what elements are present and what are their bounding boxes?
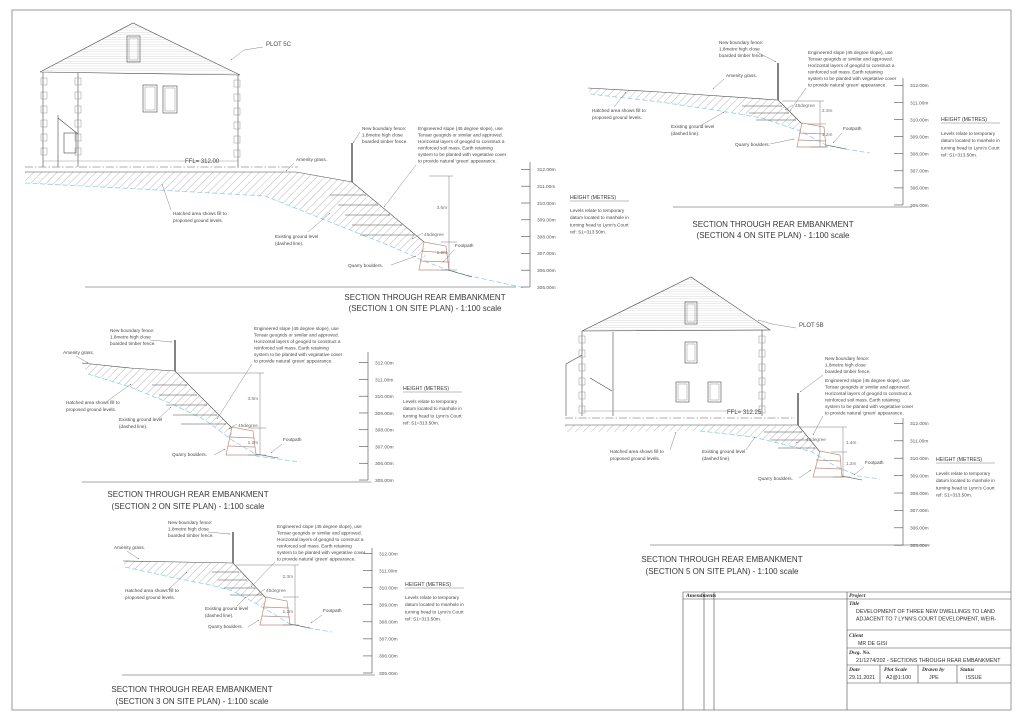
existing-ground-note: Existing ground level <box>671 124 714 129</box>
leader-line <box>251 562 275 587</box>
ffl-label: FFL= 312.00 <box>185 159 220 165</box>
height-scale-note: ref: S1=313.50m. <box>936 493 972 498</box>
hatched-area-note: Hatched area shows fill to <box>592 108 646 113</box>
section-4: 2.3m1.2m45degreeFootpathQuarry boulders.… <box>588 40 1000 240</box>
level-label: 306.00m <box>537 268 556 274</box>
leader-line <box>770 139 794 144</box>
existing-ground-note: (dashed line). <box>119 424 147 429</box>
engineered-slope-note: Engineered slope (45 degree slope), use <box>825 378 910 383</box>
level-label: 305.00m <box>537 285 556 291</box>
dim-lower-label: 1.2m <box>846 461 857 466</box>
ffl-label: FFL= 312.25 <box>727 410 762 416</box>
leader-line <box>800 375 823 392</box>
fence-note: 1.8metre high close <box>362 133 403 138</box>
quarry-boulders-label: Quarry boulders. <box>735 142 770 147</box>
level-label: 309.00m <box>375 411 394 417</box>
leader-line <box>237 597 246 606</box>
fence-note: boarded timber fence. <box>362 139 408 144</box>
level-label: 308.00m <box>375 428 394 434</box>
leader-line <box>353 132 360 143</box>
existing-ground-note: (dashed line). <box>702 456 730 461</box>
height-scale-note: Levels relate to temporary <box>405 595 460 600</box>
height-scale-note: turning head to Lynn's Court <box>405 609 464 614</box>
engineered-slope-note: system to be planted with vegetative cov… <box>825 404 914 409</box>
fill-hatch-area <box>123 561 268 610</box>
section-title-line2: (SECTION 1 ON SITE PLAN) - 1:100 scale <box>349 304 502 313</box>
engineered-slope-note: Tensar geogrids or similar and approved. <box>418 133 503 138</box>
engineered-slope-note: to provide natural 'green' appearance. <box>277 557 356 562</box>
dwg-no-label: Dwg. No. <box>848 650 871 656</box>
engineered-slope-note: Engineered slope (45 degree slope), use <box>418 126 503 131</box>
leader-line <box>384 165 416 207</box>
level-label: 310.00m <box>537 201 556 207</box>
engineered-slope-note: reinforced soil mass. Earth retaining <box>277 544 352 549</box>
section-title-line2: (SECTION 5 ON SITE PLAN) - 1:100 scale <box>646 567 799 576</box>
level-label: 311.00m <box>375 377 393 383</box>
level-label: 307.00m <box>375 444 394 450</box>
drawing-line <box>826 145 846 149</box>
status-value: ISSUE <box>966 675 982 681</box>
drawn-by-label: Drawn by <box>921 667 945 673</box>
amenity-grass-label: Amenity grass. <box>726 73 757 78</box>
plot-label: PLOT 5B <box>799 323 824 329</box>
window-frame <box>145 87 155 110</box>
section-title-line1: SECTION THROUGH REAR EMBANKMENT <box>641 555 802 564</box>
amenity-grass-label: Amenity grass. <box>63 350 94 355</box>
quoin <box>234 136 240 143</box>
drawing-line <box>566 355 582 364</box>
quarry-boulders-label: Quarry boulders. <box>758 476 793 481</box>
fence-note: 1.8metre high close <box>168 527 209 532</box>
fence-note: boarded timber fence. <box>825 369 871 374</box>
quoin <box>41 78 47 85</box>
quoin <box>234 80 240 87</box>
leader-line <box>127 551 139 559</box>
level-label: 308.00m <box>910 491 929 497</box>
fence-note: New boundary fence: <box>362 126 406 131</box>
height-scale-note: turning head to Lynn's Court <box>403 413 462 418</box>
level-label: 307.00m <box>537 251 556 257</box>
height-scale-title: HEIGHT (METRES) <box>403 386 449 392</box>
dim-upper-label: 2.3m <box>283 574 294 579</box>
project-label: Project <box>849 593 866 599</box>
existing-ground-note: Existing ground level <box>275 234 318 239</box>
hatched-area-note: Hatched area shows fill to <box>66 400 120 405</box>
window-frame <box>678 384 687 400</box>
engineered-slope-note: system to be planted with vegetative cov… <box>418 152 507 157</box>
engineered-slope-note: Engineered slope (45 degree slope), use <box>254 326 339 331</box>
section-title-line1: SECTION THROUGH REAR EMBANKMENT <box>692 220 853 229</box>
section-2: 3.5m1.2m45degreeFootpathQuarry boulders.… <box>63 326 462 511</box>
hatched-area-note: proposed ground levels. <box>125 595 175 600</box>
level-label: 306.00m <box>379 654 398 660</box>
amenity-grass-label: Amenity grass. <box>114 545 145 550</box>
sections-drawing: FFL= 312.00PLOT 5C3.6m1.2m45degreeFootpa… <box>0 0 1024 724</box>
title-label: Title <box>849 601 860 607</box>
leader-line <box>214 449 225 455</box>
section-3: 2.3m1.2m45degreeFootpathQuarry boulders.… <box>111 520 464 706</box>
engineered-slope-note: to provide natural 'green' appearance. <box>808 83 887 88</box>
height-scale-note: Levels relate to temporary <box>403 399 458 404</box>
section-title-line1: SECTION THROUGH REAR EMBANKMENT <box>111 685 272 694</box>
dim-lower-label: 1.2m <box>437 250 448 255</box>
height-scale-note: turning head to Lynn's Court <box>570 222 629 227</box>
engineered-slope-note: Horizontal layers of geogrid to construc… <box>418 139 505 144</box>
leader-line <box>713 79 724 89</box>
footpath-label: Footpath <box>323 608 342 613</box>
engineered-slope-note: Tensar geogrids or similar and approved. <box>254 333 339 338</box>
amenity-grass-label: Amenity grass. <box>296 157 327 162</box>
level-label: 309.00m <box>910 134 929 140</box>
window-frame <box>165 88 175 111</box>
slope-angle-label: 45degree <box>266 588 286 593</box>
window-frame <box>687 344 695 361</box>
level-label: 311.00m <box>537 184 555 190</box>
level-label: 312.00m <box>375 361 394 367</box>
level-label: 307.00m <box>910 508 929 514</box>
client-label: Client <box>849 633 863 639</box>
level-label: 312.00m <box>910 83 929 89</box>
leader-line <box>670 432 676 450</box>
section-title-line2: (SECTION 3 ON SITE PLAN) - 1:100 scale <box>116 697 269 706</box>
leader-line <box>785 105 793 110</box>
leader-line <box>76 356 88 363</box>
project-title-value: DEVELOPMENT OF THREE NEW DWELLINGS TO LA… <box>856 609 995 615</box>
leader-line <box>158 407 171 419</box>
footpath-label: Footpath <box>455 243 474 248</box>
slope-angle-label: 45degree <box>795 103 815 108</box>
existing-ground-note: (dashed line). <box>671 131 699 136</box>
drawing-line <box>448 270 472 277</box>
section-title-line2: (SECTION 4 ON SITE PLAN) - 1:100 scale <box>697 231 850 240</box>
fence-note: New boundary fence: <box>719 40 763 45</box>
section-title-line2: (SECTION 2 ON SITE PLAN) - 1:100 scale <box>112 502 265 511</box>
leader-line <box>833 133 842 143</box>
house-roof <box>582 277 770 331</box>
existing-ground-note: (dashed line). <box>205 613 233 618</box>
hatched-area-note: Hatched area shows fill to <box>173 211 227 216</box>
dim-upper-label: 2.3m <box>822 108 833 113</box>
drawing-sheet: FFL= 312.00PLOT 5C3.6m1.2m45degreeFootpa… <box>0 0 1024 724</box>
quarry-boulders-label: Quarry boulders. <box>348 263 383 268</box>
height-scale-note: ref: S1=313.50m. <box>405 617 441 622</box>
hatched-area-note: Hatched area shows fill to <box>125 588 179 593</box>
section-5: FFL= 312.25PLOT 5B1.4m1.2m45degreeFootpa… <box>565 277 995 576</box>
level-label: 310.00m <box>379 585 398 591</box>
height-scale-note: turning head to Lynn's Court <box>936 485 995 490</box>
level-label: 312.00m <box>910 421 929 427</box>
leader-line <box>311 615 322 623</box>
section-title-line1: SECTION THROUGH REAR EMBANKMENT <box>344 293 505 302</box>
plot-scale-value: A2@1:100 <box>886 675 911 681</box>
engineered-slope-note: system to be planted with vegetative cov… <box>808 76 897 81</box>
existing-ground-note: (dashed line). <box>275 241 303 246</box>
fence-note: boarded timber fence. <box>719 53 765 58</box>
project-title-value: ADJACENT TO 7 LYNN'S COURT DEVELOPMENT, … <box>856 617 996 623</box>
leader-line <box>231 47 263 60</box>
level-label: 306.00m <box>375 461 394 467</box>
slope-angle-label: 45degree <box>806 437 826 442</box>
level-label: 312.00m <box>537 167 556 173</box>
level-label: 312.00m <box>379 551 398 557</box>
height-scale-note: ref: S1=313.50m. <box>941 153 977 158</box>
plot-scale-label: Plot Scale <box>884 667 908 673</box>
engineered-slope-note: Engineered slope (45 degree slope), use <box>808 50 893 55</box>
engineered-slope-note: reinforced soil mass. Earth retaining <box>254 346 329 351</box>
height-scale-note: datum located to manhole in <box>405 602 464 607</box>
leader-line <box>813 416 823 435</box>
boulder-wall <box>228 446 255 447</box>
drawing-line <box>590 378 612 391</box>
slope-angle-label: 45degree <box>238 423 258 428</box>
quoin <box>41 120 47 127</box>
leader-line <box>799 470 811 478</box>
level-label: 311.00m <box>379 568 397 574</box>
section-title-line1: SECTION THROUGH REAR EMBANKMENT <box>107 490 268 499</box>
height-scale-title: HEIGHT (METRES) <box>570 195 616 201</box>
dim-upper-label: 1.4m <box>846 440 857 445</box>
hatched-area-note: proposed ground levels. <box>610 456 660 461</box>
dim-upper-label: 3.5m <box>248 396 259 401</box>
date-label: Date <box>848 667 860 673</box>
height-scale-note: datum located to manhole in <box>570 215 629 220</box>
drawing-line <box>842 476 862 480</box>
fence-note: New boundary fence: <box>825 356 869 361</box>
boulder-wall <box>815 468 842 469</box>
leader-line <box>217 364 252 419</box>
dim-lower-label: 1.2m <box>283 609 294 614</box>
engineered-slope-note: to provide natural 'green' appearance. <box>418 159 497 164</box>
engineered-slope-note: Horizontal layers of geogrid to construc… <box>277 537 364 542</box>
existing-ground-note: Existing ground level <box>702 449 745 454</box>
height-scale-note: Levels relate to temporary <box>570 208 625 213</box>
leader-line <box>746 437 755 450</box>
level-label: 305.00m <box>375 478 394 484</box>
quoin <box>41 92 47 99</box>
boulder-wall <box>229 437 255 438</box>
level-label: 305.00m <box>379 671 398 677</box>
footpath-label: Footpath <box>865 460 884 465</box>
boulder-wall <box>262 616 290 617</box>
engineered-slope-note: to provide natural 'green' appearance. <box>254 359 333 364</box>
section-1: FFL= 312.00PLOT 5C3.6m1.2m45degreeFootpa… <box>25 23 629 313</box>
level-label: 310.00m <box>910 456 929 462</box>
quoin <box>41 106 47 113</box>
quarry-boulders-label: Quarry boulders. <box>172 452 207 457</box>
engineered-slope-note: Horizontal layers of geogrid to construc… <box>808 63 895 68</box>
height-scale-title: HEIGHT (METRES) <box>405 582 451 588</box>
dim-lower-label: 1.2m <box>248 440 259 445</box>
quarry-boulders-label: Quarry boulders. <box>208 624 243 629</box>
hatched-area-note: proposed ground levels. <box>173 218 223 223</box>
engineered-slope-note: Engineered slope (45 degree slope), use <box>277 524 362 529</box>
level-label: 311.00m <box>910 100 928 106</box>
fence-note: 1.8metre high close <box>825 363 866 368</box>
footpath-label: Footpath <box>843 126 862 131</box>
engineered-slope-note: system to be planted with vegetative cov… <box>277 550 366 555</box>
level-label: 308.00m <box>537 234 556 240</box>
fence-note: 1.8metre high close <box>110 335 151 340</box>
drawing-line <box>290 624 310 628</box>
engineered-slope-note: Tensar geogrids or similar and approved. <box>808 57 893 62</box>
door <box>64 133 76 153</box>
fence-note: 1.8metre high close <box>719 47 760 52</box>
quoin <box>234 94 240 101</box>
level-label: 307.00m <box>910 169 929 175</box>
window-frame <box>710 384 719 400</box>
leader-line <box>854 467 864 475</box>
drawn-by-value: JPE <box>929 675 939 681</box>
height-scale-note: ref: S1=313.50m. <box>570 230 606 235</box>
level-label: 311.00m <box>910 439 928 445</box>
level-label: 305.00m <box>910 203 929 209</box>
height-scale-note: datum located to manhole in <box>403 406 462 411</box>
height-scale-note: Levels relate to temporary <box>941 131 996 136</box>
dim-upper-label: 3.6m <box>437 205 448 210</box>
level-label: 305.00m <box>910 543 929 549</box>
level-label: 308.00m <box>379 620 398 626</box>
slope-angle-label: 45degree <box>424 232 444 237</box>
height-scale-note: Levels relate to temporary <box>936 471 991 476</box>
level-label: 309.00m <box>537 218 556 224</box>
leader-line <box>248 620 259 627</box>
fence-note: boarded timber fence. <box>110 341 156 346</box>
level-label: 309.00m <box>910 473 929 479</box>
fence-note: boarded timber fence. <box>168 533 214 538</box>
engineered-slope-note: Horizontal layers of geogrid to construc… <box>825 391 912 396</box>
title-block: AmendmentsProjectTitleDEVELOPMENT OF THR… <box>683 592 1011 710</box>
level-label: 307.00m <box>379 637 398 643</box>
height-scale-title: HEIGHT (METRES) <box>941 117 987 123</box>
status-label: Status <box>960 667 974 673</box>
engineered-slope-note: reinforced soil mass. Earth retaining <box>825 398 900 403</box>
leader-line <box>391 256 416 265</box>
leader-line <box>271 444 282 453</box>
amendments-label: Amendments <box>685 593 716 599</box>
boulder-wall <box>798 140 826 141</box>
dwg-no-value: 21/1274/202 - SECTIONS THROUGH REAR EMBA… <box>856 658 1001 664</box>
quoin <box>234 122 240 129</box>
hatched-area-note: Hatched area shows fill to <box>610 449 664 454</box>
fence-note: New boundary fence: <box>110 328 154 333</box>
date-value: 29.11.2021 <box>849 675 875 681</box>
existing-ground-note: Existing ground level <box>119 417 162 422</box>
engineered-slope-note: Tensar geogrids or similar and approved. <box>277 531 362 536</box>
hatched-area-note: proposed ground levels. <box>66 407 116 412</box>
quoin <box>234 150 240 157</box>
engineered-slope-note: reinforced soil mass. Earth retaining <box>808 70 883 75</box>
plot-label: PLOT 5C <box>266 42 292 48</box>
level-label: 306.00m <box>910 186 929 192</box>
level-label: 310.00m <box>375 394 394 400</box>
quoin <box>41 134 47 141</box>
dim-lower-label: 1.2m <box>822 132 833 137</box>
hatched-area-note: proposed ground levels. <box>592 115 642 120</box>
footpath-label: Footpath <box>283 437 302 442</box>
engineered-slope-note: system to be planted with vegetative cov… <box>254 352 343 357</box>
level-label: 309.00m <box>379 603 398 609</box>
boulder-wall <box>420 261 449 262</box>
existing-ground-note: Existing ground level <box>205 606 248 611</box>
engineered-slope-note: Tensar geogrids or similar and approved. <box>825 385 910 390</box>
level-label: 308.00m <box>910 152 929 158</box>
quoin <box>41 148 47 155</box>
height-scale-note: ref: S1=313.50m. <box>403 421 439 426</box>
height-scale-title: HEIGHT (METRES) <box>936 457 982 463</box>
fence-note: New boundary fence: <box>168 520 212 525</box>
quoin <box>234 108 240 115</box>
height-scale-note: turning head to Lynn's Court <box>941 145 1000 150</box>
height-scale-note: datum located to manhole in <box>941 138 1000 143</box>
boulder-wall <box>816 460 841 461</box>
engineered-slope-note: to provide natural 'green' appearance. <box>825 411 904 416</box>
engineered-slope-note: reinforced soil mass. Earth retaining <box>418 146 493 151</box>
level-label: 306.00m <box>910 526 929 532</box>
client-value: MR DE GISI <box>858 641 887 647</box>
height-scale-note: datum located to manhole in <box>936 478 995 483</box>
engineered-slope-note: Horizontal layers of geogrid to construc… <box>254 339 341 344</box>
level-label: 310.00m <box>910 117 929 123</box>
